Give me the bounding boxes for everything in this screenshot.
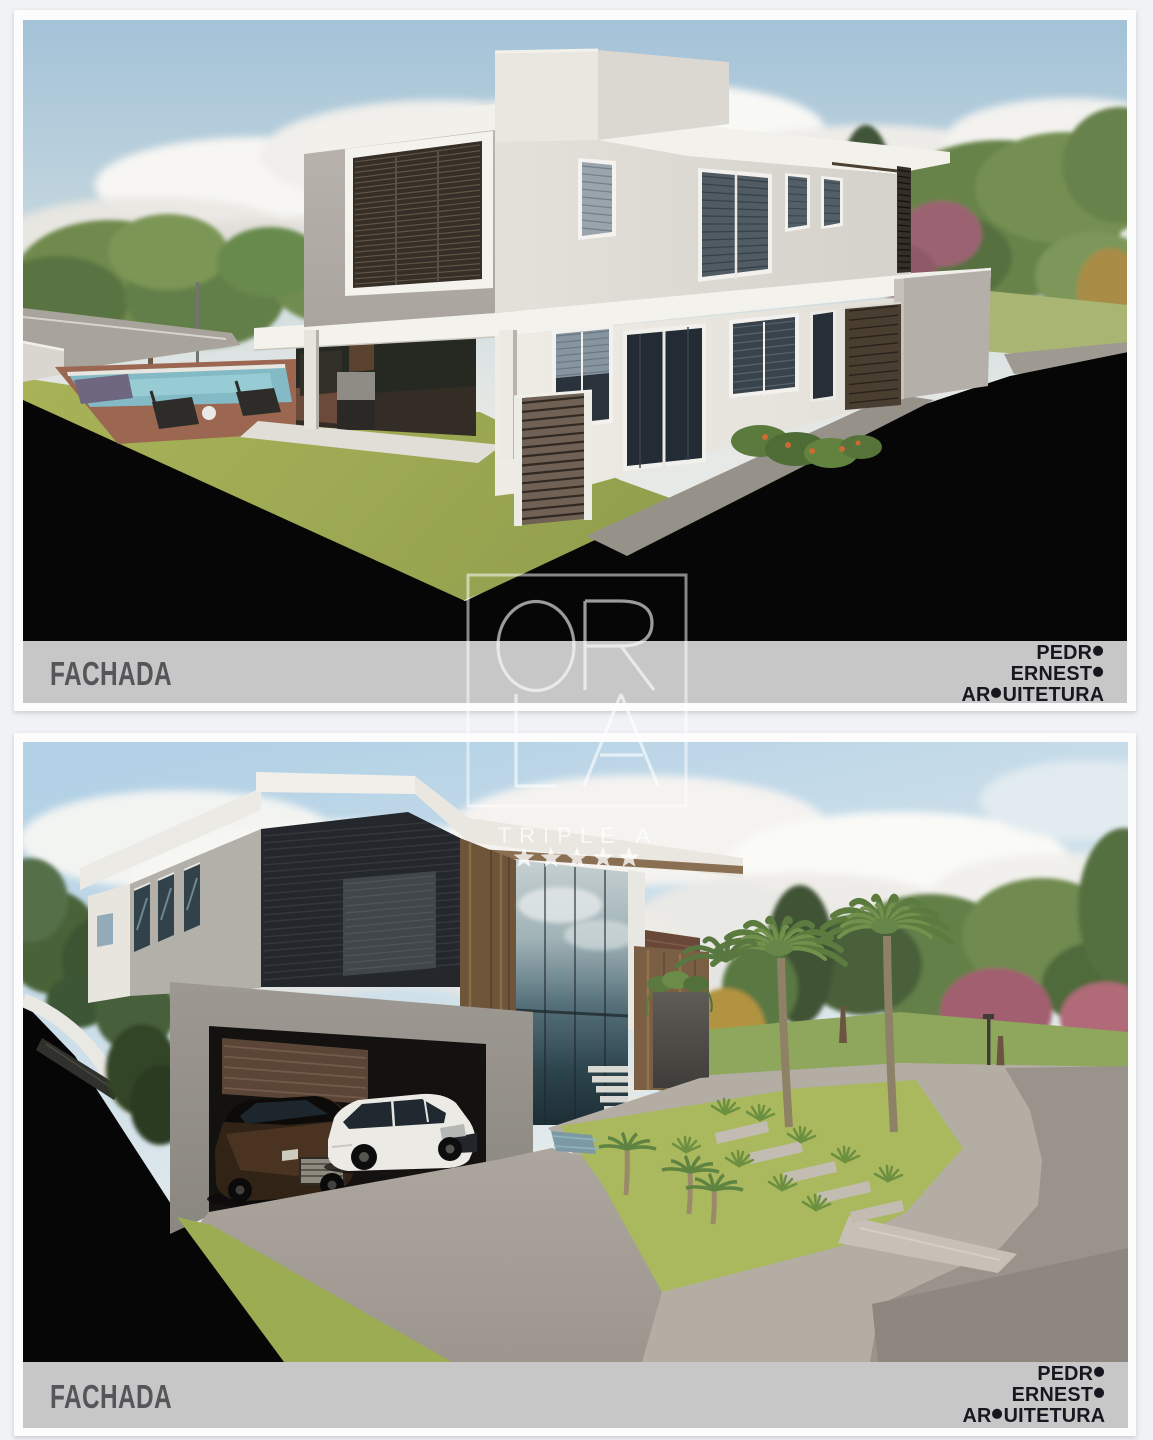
svg-text:TRIPLE A: TRIPLE A (498, 823, 659, 848)
